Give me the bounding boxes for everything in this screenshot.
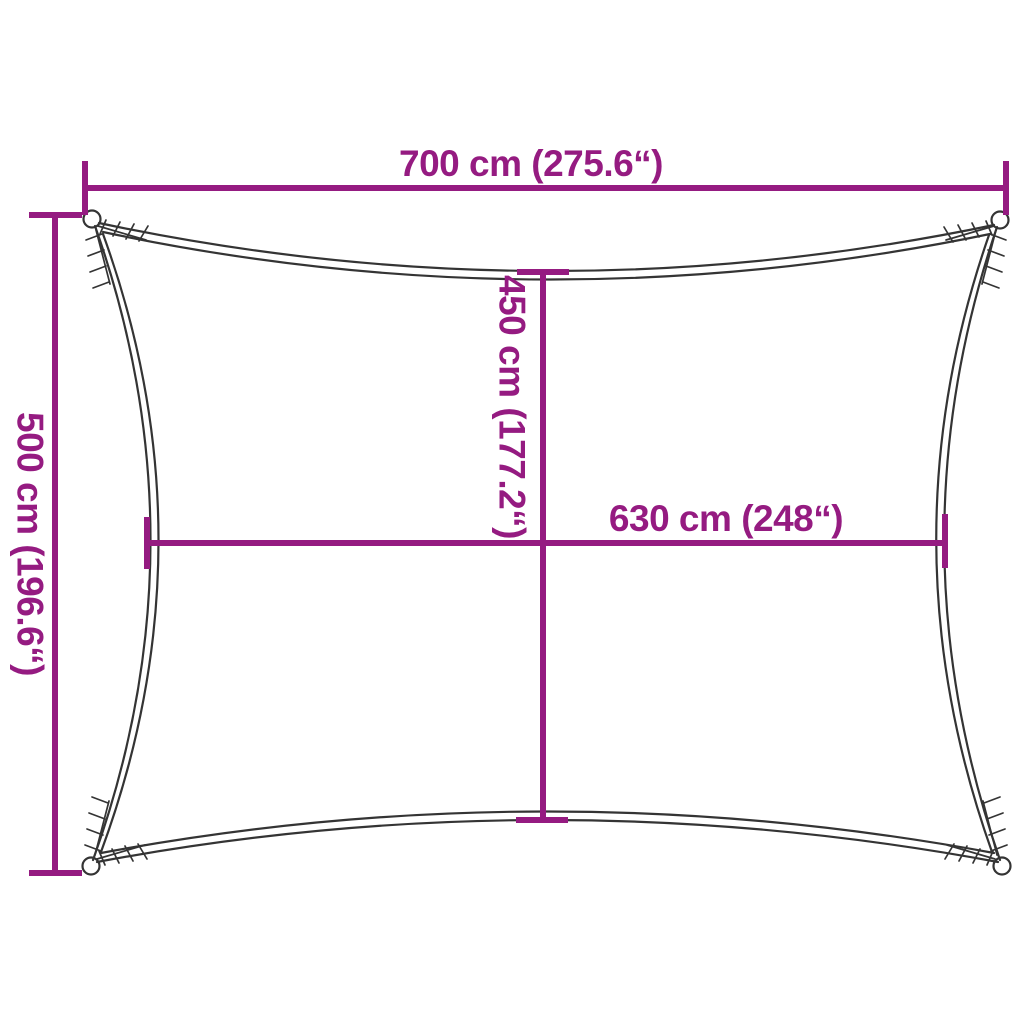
sail-top-edge-outer [99,223,994,271]
sail-left-edge-outer [93,226,151,860]
dimension-label-left-height: 500 cm (196.6“) [12,412,49,676]
diagram-canvas: 700 cm (275.6“) 500 cm (196.6“) 450 cm (… [0,0,1024,1024]
dimension-label-top-width: 700 cm (275.6“) [399,145,663,182]
eyelet-bottom-right-icon [994,858,1011,875]
dimension-label-inner-height: 450 cm (177.2“) [494,275,531,539]
sail-right-edge-outer [944,227,1000,860]
eyelet-bottom-left-icon [83,858,100,875]
dimension-label-inner-width: 630 cm (248“) [609,500,843,537]
sail-bottom-edge-outer [97,820,998,862]
